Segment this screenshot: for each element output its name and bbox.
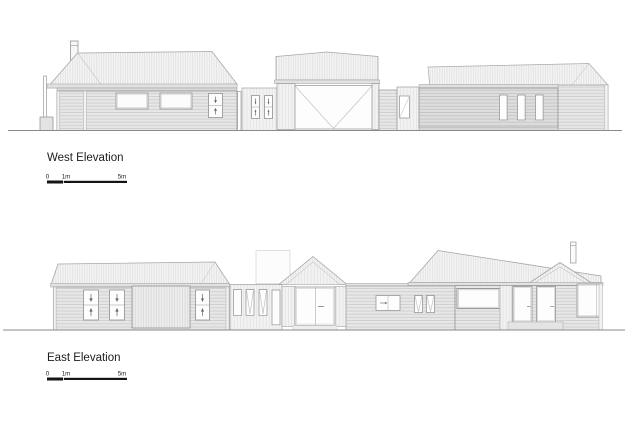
awning-window [252, 96, 260, 119]
slot-window [500, 95, 508, 120]
porch-post [238, 92, 242, 131]
main-roof [47, 52, 237, 89]
east-elevation-drawing: East Elevation 0 1m 5m [3, 242, 625, 381]
barn-door [132, 286, 190, 328]
awning-window [196, 290, 210, 320]
west-scale-bar: 0 1m 5m [46, 174, 127, 184]
scale-label-1m: 1m [62, 174, 71, 181]
elevation-drawings-canvas: West Elevation 0 1m 5m [0, 0, 640, 425]
eave-fascia [47, 84, 237, 88]
slot-window [234, 290, 242, 316]
scale-label-0: 0 [46, 371, 50, 378]
downpipe-base [40, 117, 53, 131]
east-left-house [51, 262, 231, 330]
slot-window [518, 95, 526, 120]
scale-label-1m: 1m [62, 371, 71, 378]
east-connector-wall [230, 285, 282, 331]
scale-label-5m: 5m [118, 174, 127, 181]
awning-window [84, 290, 99, 320]
glazed-door [537, 287, 556, 323]
west-elevation-drawing: West Elevation 0 1m 5m [8, 41, 622, 184]
east-main-house [346, 242, 603, 330]
west-elevation-title: West Elevation [47, 152, 124, 164]
downpipe [44, 76, 47, 118]
slot-window [536, 95, 544, 120]
corner-window [577, 284, 602, 317]
west-left-house [40, 41, 241, 131]
window [160, 93, 192, 109]
entry-glazed-door [295, 287, 335, 326]
background-volume [256, 251, 290, 284]
scale-label-5m: 5m [118, 371, 127, 378]
side-gate [379, 90, 397, 131]
window [116, 93, 148, 109]
garage-door [295, 86, 372, 130]
sliding-window [376, 296, 400, 311]
glazed-door [513, 287, 532, 323]
west-right-wing [419, 85, 558, 131]
awning-window [209, 94, 223, 118]
east-elevation-title: East Elevation [47, 352, 121, 364]
casement-window [246, 290, 254, 316]
east-scale-bar: 0 1m 5m [46, 371, 127, 381]
casement-window [427, 296, 435, 313]
casement-window [400, 96, 410, 118]
scale-label-0: 0 [46, 174, 50, 181]
slot-window [272, 290, 280, 325]
band-window [457, 289, 500, 309]
link-wall [346, 286, 455, 330]
casement-window [415, 296, 423, 313]
garage-roof [276, 52, 378, 80]
awning-window [265, 96, 273, 119]
casement-window [259, 290, 267, 316]
chimney-flue [571, 242, 577, 263]
west-garage [275, 52, 421, 131]
west-connector-wall [242, 88, 277, 131]
porch-plinth [508, 322, 563, 330]
awning-window [110, 290, 125, 320]
architectural-drawing-sheet: West Elevation 0 1m 5m [0, 0, 640, 425]
